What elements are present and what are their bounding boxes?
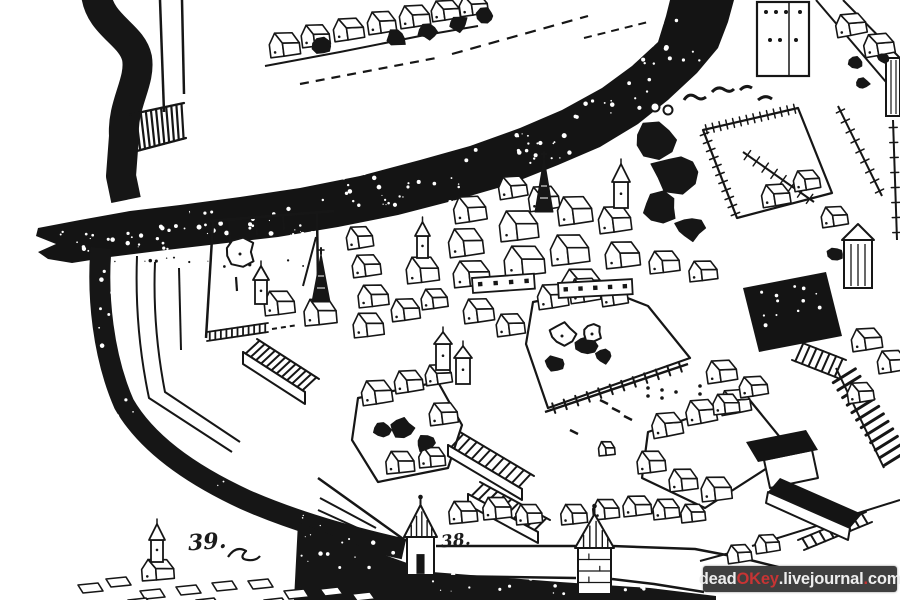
field-line: [179, 268, 181, 350]
house: [668, 467, 698, 492]
barrel: [664, 106, 673, 115]
house: [462, 296, 495, 323]
house: [268, 30, 301, 57]
tree: [675, 219, 706, 242]
tree: [476, 8, 492, 23]
house: [352, 311, 384, 338]
figures: [712, 88, 734, 92]
house: [604, 239, 641, 268]
bush: [227, 238, 254, 267]
house: [598, 441, 615, 456]
tree: [827, 248, 842, 260]
map-number-39: 39.: [187, 530, 227, 555]
tree: [418, 24, 438, 40]
figures: [740, 86, 752, 90]
watermark-text: livejournal: [783, 570, 863, 589]
shed: [106, 577, 131, 587]
shed: [320, 587, 343, 596]
house: [351, 253, 381, 278]
shed: [352, 592, 375, 600]
shed: [78, 583, 103, 593]
house: [684, 397, 718, 426]
road-dashed: [300, 58, 436, 84]
house: [390, 297, 420, 322]
house: [549, 232, 590, 266]
house: [792, 168, 821, 192]
house: [834, 11, 867, 38]
house: [648, 249, 680, 274]
mark: [236, 277, 237, 291]
house: [345, 224, 374, 249]
house: [498, 208, 539, 242]
house: [447, 226, 484, 258]
house: [820, 204, 849, 227]
edge-building: [886, 58, 900, 116]
house: [393, 368, 424, 394]
steeple: [454, 341, 472, 384]
house: [726, 543, 752, 564]
figures: [758, 97, 772, 100]
house: [515, 503, 543, 525]
church-spire-dark: [312, 248, 330, 302]
gallows-rope: [256, 218, 257, 235]
gallows-ladder: [303, 237, 316, 286]
house: [405, 255, 440, 284]
chapel-gable: [842, 224, 874, 240]
steeple: [149, 519, 165, 562]
arcade: [472, 274, 535, 293]
house: [760, 182, 791, 208]
wall-tower-left: [404, 495, 437, 575]
house: [503, 244, 545, 277]
road-dashed: [452, 16, 588, 54]
house: [385, 450, 415, 474]
tree-outline: [584, 324, 601, 341]
shed: [284, 589, 309, 599]
tree: [857, 78, 871, 88]
parade-hatch: [700, 132, 739, 215]
house: [482, 496, 512, 520]
house: [360, 378, 393, 406]
house: [862, 31, 895, 58]
house: [357, 283, 389, 308]
wall-north: [96, 0, 138, 200]
field-dots: [646, 384, 702, 400]
house: [636, 449, 666, 474]
gallows-rope: [283, 216, 284, 230]
watermark-text: dead: [699, 570, 737, 589]
tree: [651, 157, 698, 194]
tree: [644, 191, 676, 223]
steeple: [253, 261, 269, 304]
house: [495, 312, 525, 337]
field-dash: [570, 400, 632, 434]
shed: [176, 585, 201, 595]
arcade: [558, 279, 633, 298]
barrel: [651, 103, 660, 112]
road-hatch: [836, 109, 883, 193]
marsh-mark: [228, 549, 260, 560]
house: [428, 401, 458, 426]
fence-dash: [272, 325, 298, 329]
figures: [684, 95, 706, 100]
house: [754, 533, 780, 554]
bank-dots: [93, 255, 304, 268]
tree: [596, 349, 611, 364]
tree: [391, 418, 415, 438]
map-canvas: [0, 0, 900, 600]
house: [688, 259, 718, 282]
watermark-text: com: [868, 570, 900, 589]
road-dashed: [584, 22, 648, 38]
wall-road: [137, 256, 232, 452]
tree: [545, 356, 564, 371]
tree: [637, 122, 676, 160]
tree: [387, 30, 405, 45]
house: [705, 358, 738, 384]
wall-road: [155, 262, 240, 442]
house: [420, 287, 448, 310]
stall-row: [545, 364, 688, 412]
house: [738, 374, 769, 398]
gallows-rope: [229, 220, 230, 243]
watermark-text: OKey: [736, 570, 778, 589]
tree: [374, 423, 392, 437]
house: [650, 410, 684, 439]
house: [876, 348, 900, 374]
house: [622, 494, 652, 517]
map-screenshot: 39. 38. deadOKey.livejournal.com: [0, 0, 900, 600]
shed: [212, 581, 237, 591]
watermark: deadOKey.livejournal.com: [703, 566, 897, 592]
edge-line: [893, 120, 897, 240]
road-edge: [160, 0, 164, 112]
house: [850, 326, 883, 352]
tree: [848, 57, 862, 69]
house: [560, 503, 588, 525]
road-edge: [182, 0, 184, 94]
steeple: [415, 217, 430, 258]
house: [556, 194, 593, 226]
tree-outline: [550, 322, 577, 346]
garden-dark: [743, 272, 842, 352]
shed: [248, 579, 273, 589]
house: [332, 16, 365, 42]
steeple: [434, 327, 452, 370]
fence: [207, 323, 268, 341]
map-number-38: 38.: [440, 532, 471, 552]
tree: [877, 54, 889, 63]
house: [652, 497, 680, 520]
house: [700, 475, 732, 502]
steeple: [612, 159, 630, 208]
